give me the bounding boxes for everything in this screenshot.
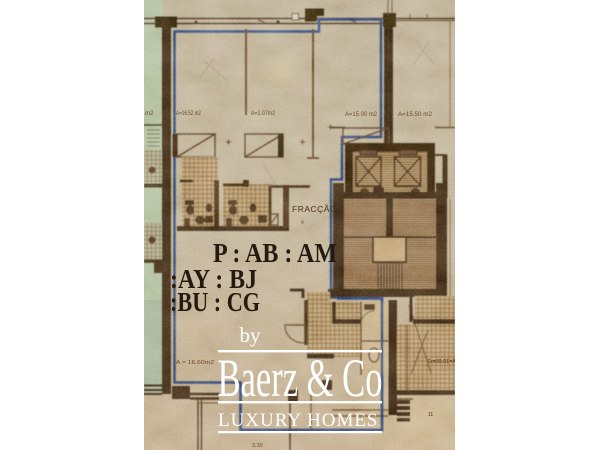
svg-text:A=1.07m2: A=1.07m2 <box>251 111 276 117</box>
svg-text:A=15.00m2: A=15.00m2 <box>428 359 456 365</box>
svg-text:by: by <box>240 323 262 347</box>
svg-text:Baerz & Co: Baerz & Co <box>218 348 383 408</box>
svg-text:m2: m2 <box>145 111 154 117</box>
svg-text:FRACÇÃO: FRACÇÃO <box>292 204 337 214</box>
svg-text:11: 11 <box>428 412 433 418</box>
svg-text:A=16.52 m2: A=16.52 m2 <box>176 111 202 117</box>
svg-text:A=15.00 m2: A=15.00 m2 <box>345 112 378 118</box>
svg-text:A=15.50 m2: A=15.50 m2 <box>398 112 433 118</box>
svg-text:3.30: 3.30 <box>252 443 263 449</box>
svg-text::BU : CG: :BU : CG <box>170 287 260 317</box>
svg-text:A = 16.60m2: A = 16.60m2 <box>176 360 214 366</box>
svg-text:LUXURY HOMES: LUXURY HOMES <box>218 410 382 431</box>
svg-text:110: 110 <box>424 193 434 199</box>
